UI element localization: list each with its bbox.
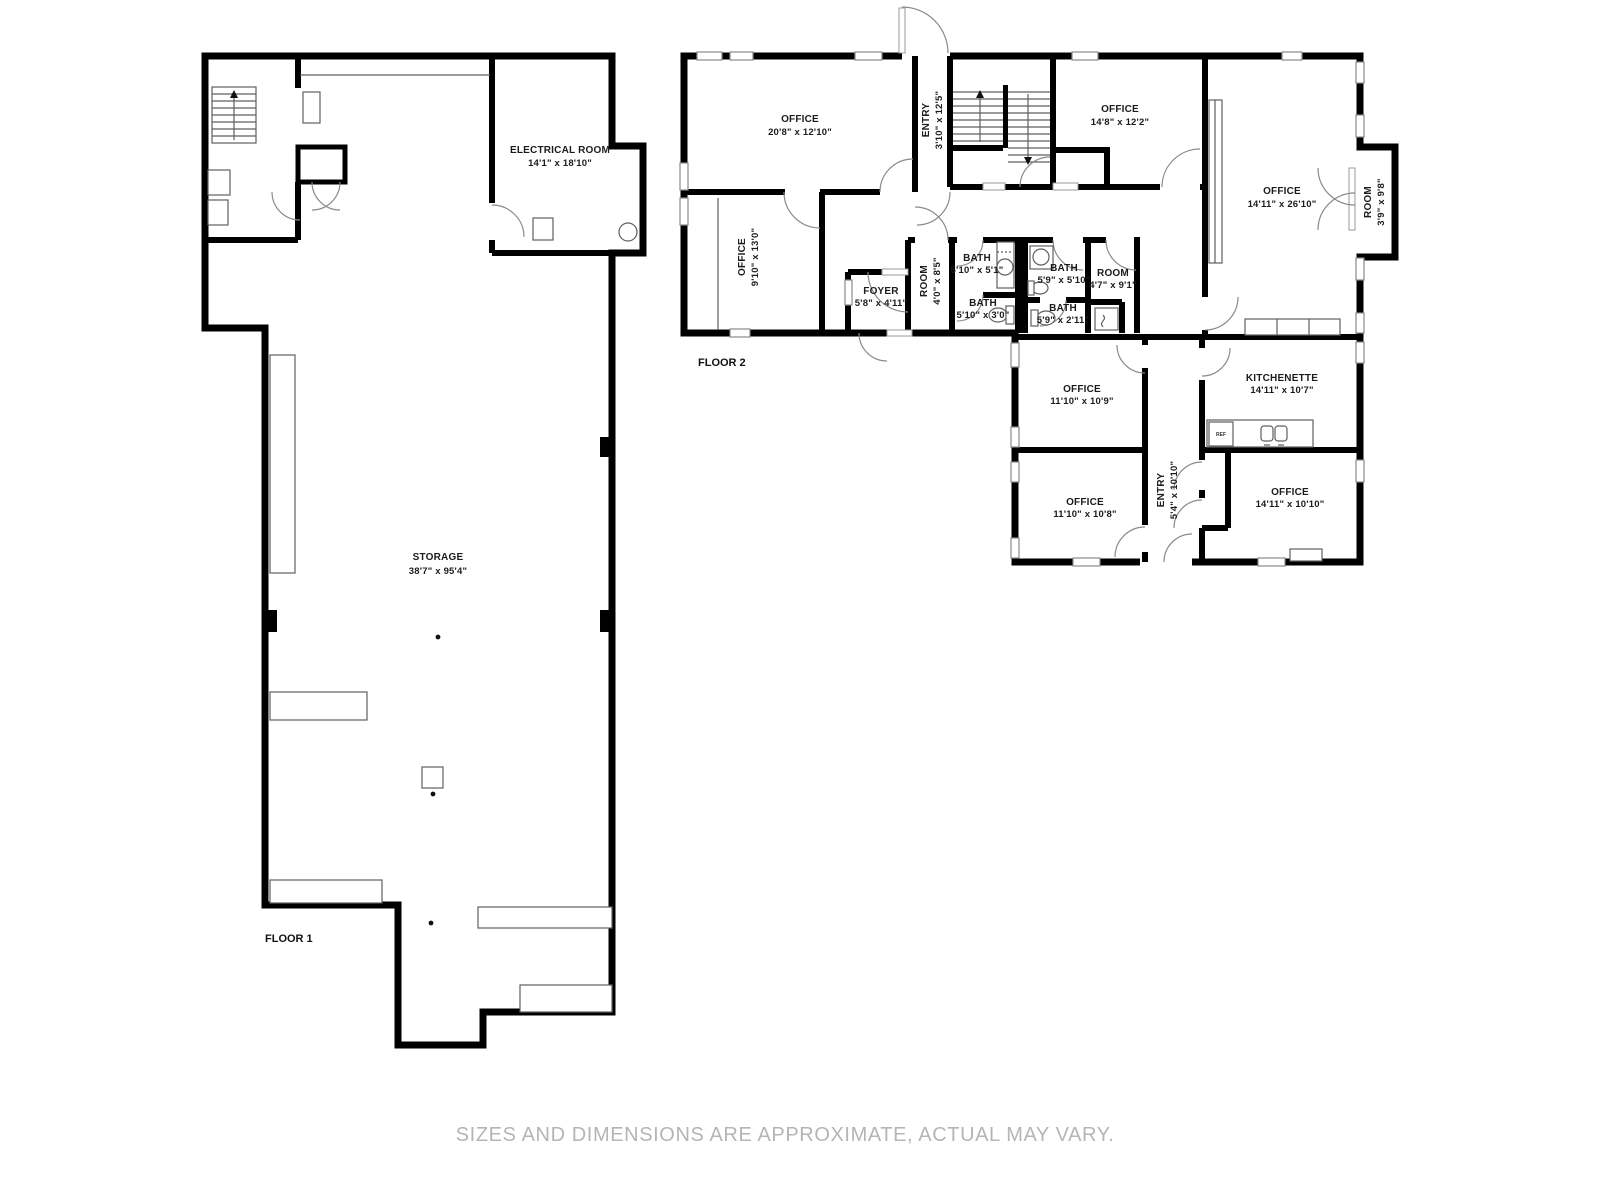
- column-dot: [431, 792, 436, 797]
- disclaimer-text: SIZES AND DIMENSIONS ARE APPROXIMATE, AC…: [456, 1124, 1115, 1146]
- room-label-foyer-dims: 5'8" x 4'11": [855, 298, 907, 309]
- room-label-office-b3-name: OFFICE: [1271, 487, 1309, 498]
- kitchen-sink-basin: [1261, 426, 1273, 441]
- room-label-office-b2-name: OFFICE: [1066, 497, 1104, 508]
- room-label-bath-c-dims: 5'9" x 5'10": [1038, 275, 1091, 286]
- room-label-room-mid-name: ROOM: [1097, 268, 1129, 279]
- column-dot: [429, 921, 434, 926]
- room-label-office-b3-dims: 14'11" x 10'10": [1256, 499, 1325, 510]
- storage-rack: [478, 907, 612, 928]
- electrical-tank: [619, 223, 637, 241]
- floor2: OFFICE 20'8" x 12'10" ENTRY 3'10" x 12'5…: [680, 7, 1395, 567]
- floor1-closet: [298, 147, 345, 182]
- office-big-cabinet: [1245, 319, 1340, 335]
- room-label-storage-dims: 38'7" x 95'4": [409, 566, 467, 577]
- room-label-office-left-name: OFFICE: [737, 238, 748, 276]
- room-label-entry-bottom-dims: 5'4" x 10'10": [1169, 461, 1180, 519]
- electrical-equipment: [533, 218, 553, 240]
- floor2-label: FLOOR 2: [698, 357, 746, 369]
- room-label-bath-b-name: BATH: [969, 298, 997, 309]
- room-label-office-big-name: OFFICE: [1263, 186, 1301, 197]
- room-label-office-big-dims: 14'11" x 26'10": [1248, 199, 1317, 210]
- room-label-bath-b-dims: 5'10" x 3'0": [957, 310, 1010, 321]
- room-label-entry-bottom-name: ENTRY: [1156, 473, 1167, 508]
- stairs-up-arrow: [976, 90, 984, 98]
- room-label-bath-a-dims: 5'10" x 5'1": [951, 265, 1004, 276]
- floorplan-canvas: ELECTRICAL ROOM 14'1" x 18'10" STORAGE 3…: [0, 0, 1600, 1200]
- room-label-bath-c-name: BATH: [1050, 263, 1078, 274]
- room-label-room-small-name: ROOM: [919, 265, 930, 297]
- room-label-office-tl-dims: 20'8" x 12'10": [768, 127, 832, 138]
- floor1: ELECTRICAL ROOM 14'1" x 18'10" STORAGE 3…: [205, 56, 643, 1045]
- shower: [1095, 308, 1118, 330]
- plumbing-wall: [1015, 237, 1028, 333]
- room-label-electrical-name: ELECTRICAL ROOM: [510, 145, 610, 156]
- room-label-kitchenette-name: KITCHENETTE: [1246, 373, 1318, 384]
- room-label-office-b1-name: OFFICE: [1063, 384, 1101, 395]
- storage-rack: [520, 985, 612, 1012]
- room-label-bath-d-name: BATH: [1049, 303, 1077, 314]
- floor1-fixtures: [208, 75, 637, 1012]
- floor2-stairs: [953, 90, 1078, 190]
- room-label-room-right-name: ROOM: [1363, 186, 1374, 218]
- floor1-stairs: [212, 87, 256, 143]
- room-label-office-tl-name: OFFICE: [781, 114, 819, 125]
- fridge-label: REF: [1216, 432, 1226, 438]
- storage-rack: [270, 880, 382, 903]
- storage-rack: [270, 355, 295, 573]
- column-dot: [436, 635, 441, 640]
- room-label-bath-d-dims: 5'9" x 2'11": [1037, 315, 1089, 326]
- storage-rack: [270, 692, 367, 720]
- room-label-office-left-dims: 9'10" x 13'0": [750, 228, 761, 286]
- room-label-room-right-dims: 3'9" x 9'8": [1376, 178, 1387, 225]
- stair-divider-wall: [1003, 85, 1008, 148]
- room-label-entry-top-name: ENTRY: [921, 103, 932, 138]
- floorplan-page: ELECTRICAL ROOM 14'1" x 18'10" STORAGE 3…: [0, 0, 1600, 1200]
- floor1-door-arcs: [272, 182, 524, 237]
- room-label-bath-a-name: BATH: [963, 253, 991, 264]
- room-label-office-tm-name: OFFICE: [1101, 104, 1139, 115]
- room-label-storage-name: STORAGE: [413, 552, 464, 563]
- room-label-room-small-dims: 4'0" x 8'5": [932, 257, 943, 304]
- room-label-office-tm-dims: 14'8" x 12'2": [1091, 117, 1149, 128]
- floor1-pillars: [265, 437, 612, 632]
- room-label-kitchenette-dims: 14'11" x 10'7": [1250, 385, 1313, 396]
- floor1-label: FLOOR 1: [265, 933, 313, 945]
- bath-sink: [1033, 249, 1049, 265]
- room-label-office-b1-dims: 11'10" x 10'9": [1050, 396, 1113, 407]
- room-label-room-mid-dims: 4'7" x 9'1": [1089, 280, 1136, 291]
- room-label-entry-top-dims: 3'10" x 12'5": [934, 91, 945, 149]
- room-label-foyer-name: FOYER: [863, 286, 899, 297]
- room-label-office-b2-dims: 11'10" x 10'8": [1053, 509, 1116, 520]
- kitchen-sink-basin: [1275, 426, 1287, 441]
- room-label-electrical-dims: 14'1" x 18'10": [528, 158, 592, 169]
